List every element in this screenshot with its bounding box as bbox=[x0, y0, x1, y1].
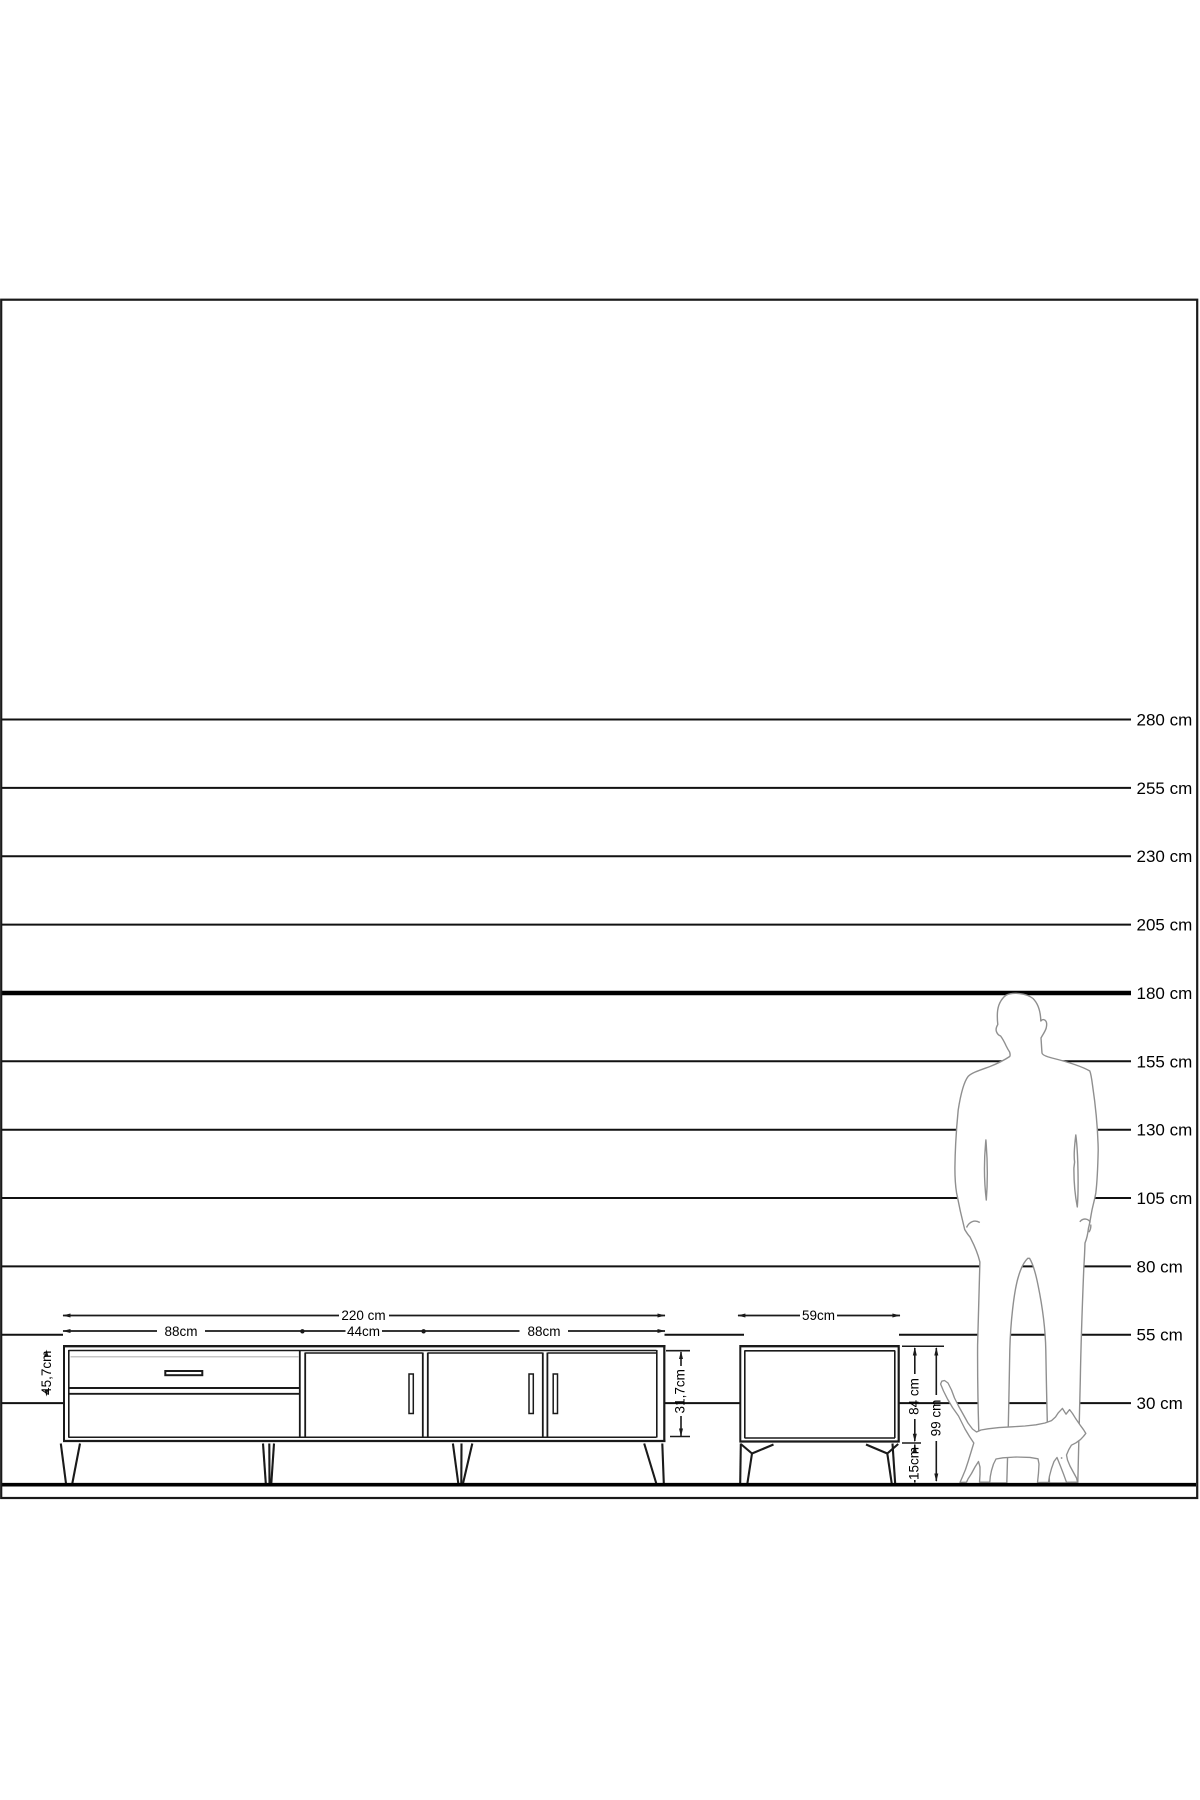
svg-text:44cm: 44cm bbox=[347, 1324, 380, 1339]
svg-text:230 cm: 230 cm bbox=[1137, 847, 1193, 866]
svg-text:220 cm: 220 cm bbox=[341, 1308, 385, 1323]
svg-text:55 cm: 55 cm bbox=[1137, 1326, 1183, 1345]
svg-text:280 cm: 280 cm bbox=[1137, 711, 1193, 730]
svg-text:105 cm: 105 cm bbox=[1137, 1189, 1193, 1208]
svg-text:31,7cm: 31,7cm bbox=[673, 1369, 688, 1413]
svg-text:130 cm: 130 cm bbox=[1137, 1121, 1193, 1140]
svg-text:88cm: 88cm bbox=[164, 1324, 197, 1339]
svg-text:88cm: 88cm bbox=[527, 1324, 560, 1339]
svg-text:80 cm: 80 cm bbox=[1137, 1257, 1183, 1276]
svg-text:99 cm: 99 cm bbox=[928, 1400, 943, 1437]
svg-text:180 cm: 180 cm bbox=[1137, 984, 1193, 1003]
svg-text:205 cm: 205 cm bbox=[1137, 916, 1193, 935]
svg-text:255 cm: 255 cm bbox=[1137, 779, 1193, 798]
svg-text:84 cm: 84 cm bbox=[907, 1378, 922, 1415]
svg-text:59cm: 59cm bbox=[802, 1308, 835, 1323]
svg-text:30 cm: 30 cm bbox=[1137, 1394, 1183, 1413]
svg-text:155 cm: 155 cm bbox=[1137, 1052, 1193, 1071]
svg-text:15cm: 15cm bbox=[907, 1447, 922, 1480]
svg-text:45,7cm: 45,7cm bbox=[39, 1351, 54, 1395]
